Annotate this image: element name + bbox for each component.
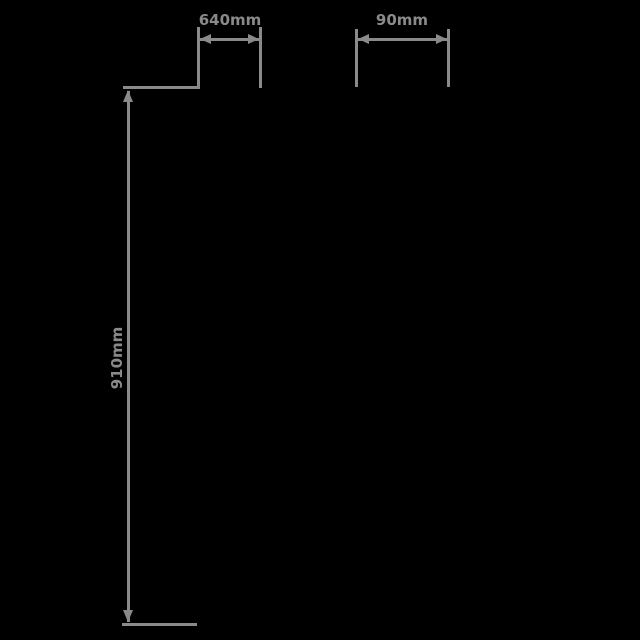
arrow-down-icon [123,610,133,622]
extension-line-right [259,27,262,88]
extension-line-top [123,86,200,89]
dimension-line [358,38,447,41]
arrow-right-icon [436,34,447,44]
dim-label-height: 910mm [109,323,125,393]
dimension-line [127,91,130,622]
dim-label-width-right: 90mm [366,12,438,28]
arrow-up-icon [123,90,133,102]
arrow-right-icon [248,34,259,44]
dimension-diagram: 640mm 90mm 910mm [0,0,640,640]
arrow-left-icon [358,34,369,44]
extension-line-bottom [122,623,197,626]
arrow-left-icon [200,34,211,44]
dim-label-width-left: 640mm [194,12,266,28]
extension-line-right [447,29,450,87]
